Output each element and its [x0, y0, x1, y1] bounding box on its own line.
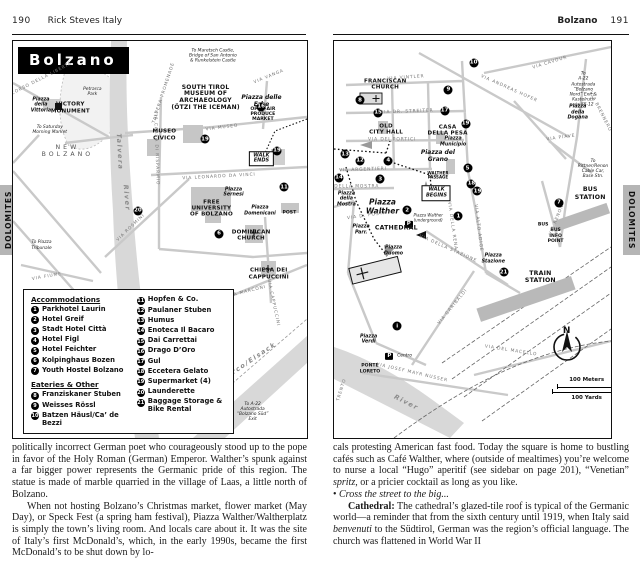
- legend-heading-eateries: Eateries & Other: [31, 380, 130, 389]
- legend-marker: 10: [31, 412, 39, 420]
- legend-label: Weisses Rössl: [42, 402, 96, 410]
- map-label: Piazza della Dogana: [567, 105, 588, 122]
- legend-marker: 14: [137, 327, 145, 335]
- legend-item: 3 Stadt Hotel Città: [31, 326, 130, 335]
- legend-item: 13 Humus: [137, 317, 228, 326]
- scale-meters-label: 100 Meters: [549, 377, 612, 383]
- map-label: Piazza del Grano: [421, 150, 455, 164]
- compass-north-label: N: [563, 326, 571, 336]
- legend-item: 5 Hotel Feichter: [31, 346, 130, 355]
- map-label: Piazza Municipio: [440, 137, 466, 148]
- body-paragraph: cals protesting American fast food. Toda…: [333, 442, 629, 489]
- legend-item: 9 Weisses Rössl: [31, 402, 130, 411]
- legend-marker: 4: [31, 337, 39, 345]
- map-label: Piazza Parr.: [353, 225, 370, 236]
- legend-label: Gul: [148, 358, 161, 366]
- map-marker: 4: [384, 156, 393, 165]
- legend-label: Baggage Storage & Bike Rental: [148, 398, 228, 414]
- legend-item: 6 Kolpinghaus Bozen: [31, 357, 130, 366]
- map-label: River: [121, 184, 131, 211]
- legend-marker: 18: [137, 368, 145, 376]
- text-run: politically incorrect German poet who co…: [12, 442, 307, 500]
- map-label: VIA DELLA MOSTRA: [333, 184, 379, 189]
- map-legend: Accommodations 1 Parkhotel Laurin 2 Hote…: [23, 289, 234, 434]
- map-marker: 16: [257, 102, 266, 111]
- legend-marker: 8: [31, 392, 39, 400]
- legend-label: Launderette: [148, 388, 195, 396]
- map-marker: 14: [334, 173, 343, 182]
- map-label: VICTORY MONUMENT: [51, 102, 90, 115]
- legend-marker: 2: [31, 316, 39, 324]
- legend-label: Hotel Feichter: [42, 346, 96, 354]
- map-label: To A-22 Autostrada “Bolzano Süd” Exit: [237, 402, 269, 422]
- legend-label: Supermarket (4): [148, 378, 211, 386]
- legend-item: 20 Launderette: [137, 388, 228, 397]
- legend-item: 16 Drago D’Oro: [137, 347, 228, 356]
- map-marker: 19: [273, 146, 282, 155]
- legend-item: 8 Franziskaner Stuben: [31, 391, 130, 400]
- map-label: FREE UNIVERSITY OF BOLZANO: [190, 199, 233, 218]
- legend-label: Franziskaner Stuben: [42, 391, 121, 399]
- legend-item: 7 Youth Hostel Bolzano: [31, 367, 130, 376]
- map-marker: 10: [469, 58, 478, 67]
- legend-marker: 20: [137, 389, 145, 397]
- legend-item: 19 Supermarket (4): [137, 378, 228, 387]
- legend-item: 17 Gul: [137, 358, 228, 367]
- legend-label: Batzen Häusl/Ca’ de Bezzi: [42, 412, 130, 428]
- map-label: DOMINICAN CHURCH: [232, 229, 271, 242]
- map-label: Piazza Walther (underground): [413, 214, 442, 223]
- map-marker: 13: [341, 150, 350, 159]
- section-tab-dolomites-right: DOLOMITES: [623, 185, 640, 255]
- legend-label: Humus: [148, 317, 175, 325]
- text-run: Cathedral:: [348, 501, 395, 512]
- legend-item: 11 Hopfen & Co.: [137, 296, 228, 305]
- text-run: cals protesting American fast food. Toda…: [333, 442, 629, 476]
- legend-item: 10 Batzen Häusl/Ca’ de Bezzi: [31, 412, 130, 428]
- map-label: CATHEDRAL: [375, 224, 418, 231]
- chapter-title: Bolzano: [557, 16, 597, 26]
- map-label: Petrarca Park: [83, 87, 101, 97]
- map-marker: 7: [554, 198, 563, 207]
- legend-label: Youth Hostel Bolzano: [42, 367, 123, 375]
- legend-marker: 12: [137, 307, 145, 315]
- map-marker: 1: [454, 212, 463, 221]
- map-label: Piazza Duomo: [384, 246, 403, 257]
- map-label: To Rittner/Renon Cable Car, Base Stn.: [578, 159, 609, 179]
- map-label: TRAIN STATION: [525, 270, 556, 284]
- map-label: SOUTH TIROL MUSEUM OF ARCHAEOLOGY (ÖTZI …: [171, 85, 239, 113]
- legend-item: 15 Dai Carrettai: [137, 337, 228, 346]
- legend-marker: 19: [137, 378, 145, 386]
- map-label: BUS: [538, 222, 549, 227]
- map-label: Talvera: [114, 133, 123, 170]
- legend-marker: 11: [137, 297, 145, 305]
- map-label: To Piazza Tribunale: [31, 240, 51, 250]
- legend-label: Dai Carrettai: [148, 337, 197, 345]
- map-marker: 5: [463, 164, 472, 173]
- legend-marker: 9: [31, 402, 39, 410]
- map-marker: 19: [473, 187, 482, 196]
- legend-label: Enoteca Il Bacaro: [148, 327, 215, 335]
- map-title: Bolzano: [18, 47, 129, 74]
- legend-item: 18 Eccetera Gelato: [137, 368, 228, 377]
- map-label: To Maretsch Castle, Bridge of San Antoni…: [189, 48, 237, 63]
- legend-label: Stadt Hotel Città: [42, 326, 107, 334]
- legend-label: Hotel Greif: [42, 316, 84, 324]
- map-marker: 6: [215, 229, 224, 238]
- map-marker: 9: [444, 85, 453, 94]
- legend-marker: 6: [31, 357, 39, 365]
- text-run: , or a pricier cocktail as long as you l…: [355, 477, 517, 488]
- legend-item: 1 Parkhotel Laurin: [31, 306, 130, 315]
- legend-column-2: 11 Hopfen & Co. 12 Paulaner Stuben 13 Hu…: [137, 295, 228, 429]
- map-label: Piazza della Vittoria: [31, 97, 51, 114]
- map-label: Piazza Domenicani: [244, 206, 276, 217]
- body-paragraph: Cathedral: The cathedral’s glazed-tile r…: [333, 501, 629, 548]
- legend-marker: 21: [137, 399, 145, 407]
- map-label: P: [385, 353, 393, 359]
- book-spread: DOLOMITES DOLOMITES 190 Rick Steves Ital…: [0, 0, 640, 568]
- page-header-right: Bolzano 191: [333, 16, 629, 35]
- map-marker: 15: [374, 108, 383, 117]
- text-run: Cross the street to the big...: [339, 489, 449, 500]
- map-label: Centro: [397, 354, 412, 359]
- scale-yards-label: 100 Yards: [549, 395, 612, 401]
- legend-marker: 5: [31, 347, 39, 355]
- legend-label: Hotel Figl: [42, 336, 79, 344]
- map-marker: 19: [461, 119, 470, 128]
- legend-item: 21 Baggage Storage & Bike Rental: [137, 398, 228, 414]
- bolzano-map-west: Bolzano To Maretsch Castle, Bridge of Sa…: [12, 40, 308, 439]
- legend-marker: 3: [31, 327, 39, 335]
- map-label: OLD CITY HALL: [369, 123, 403, 136]
- map-marker: 20: [133, 206, 142, 215]
- map-marker: 17: [440, 106, 449, 115]
- page-header-left: 190 Rick Steves Italy: [12, 16, 306, 35]
- legend-label: Parkhotel Laurin: [42, 306, 106, 314]
- legend-item: 14 Enoteca Il Bacaro: [137, 327, 228, 336]
- text-run: When not hosting Bolzano’s Christmas mar…: [12, 501, 307, 559]
- map-label: WALTHER PASSAGE: [427, 171, 448, 180]
- map-label: VIA DEI PORTICI: [368, 137, 416, 142]
- legend-label: Drago D’Oro: [148, 347, 196, 355]
- page-number: 191: [610, 16, 629, 26]
- map-marker: 12: [356, 156, 365, 165]
- legend-marker: 16: [137, 348, 145, 356]
- legend-label: Hopfen & Co.: [148, 296, 199, 304]
- bolzano-map-east: FRANCISCAN CHURCHVIA VINTLERVIA CAVOURVI…: [333, 40, 612, 439]
- scale-yards-bar: [552, 389, 612, 394]
- legend-marker: 17: [137, 358, 145, 366]
- map-marker: 3: [376, 175, 385, 184]
- map-label: Piazza Sernesi: [223, 187, 243, 198]
- legend-label: Kolpinghaus Bozen: [42, 357, 115, 365]
- map-label: Piazza Stazione: [482, 254, 505, 265]
- book-title: Rick Steves Italy: [48, 16, 123, 26]
- legend-label: Eccetera Gelato: [148, 368, 209, 376]
- map-marker: 8: [356, 96, 365, 105]
- legend-item: 2 Hotel Greif: [31, 316, 130, 325]
- legend-heading-accommodations: Accommodations: [31, 295, 130, 304]
- map-marker: 2: [403, 206, 412, 215]
- text-run: benvenuti: [333, 524, 372, 535]
- body-text-right: cals protesting American fast food. Toda…: [333, 442, 629, 547]
- map-label: Piazza della Mostra: [337, 192, 356, 209]
- map-label: WALK ENDS: [249, 151, 273, 167]
- legend-marker: 1: [31, 306, 39, 314]
- text-run: spritz: [333, 477, 355, 488]
- legend-item: 12 Paulaner Stuben: [137, 307, 228, 316]
- scale-bar: 100 Meters 100 Yards: [549, 376, 612, 402]
- compass-rose: N: [550, 325, 584, 369]
- legend-label: Paulaner Stuben: [148, 307, 212, 315]
- body-paragraph: When not hosting Bolzano’s Christmas mar…: [12, 501, 307, 560]
- map-label: WALK BEGINS: [422, 186, 451, 202]
- legend-item: 4 Hotel Figl: [31, 336, 130, 345]
- map-label: To Saturday Morning Market: [33, 125, 68, 135]
- legend-column-1: Accommodations 1 Parkhotel Laurin 2 Hote…: [31, 295, 130, 429]
- map-label: POST: [283, 210, 297, 215]
- map-marker: 11: [280, 183, 289, 192]
- legend-marker: 15: [137, 338, 145, 346]
- map-marker: 21: [499, 268, 508, 277]
- page-number: 190: [12, 16, 31, 26]
- body-text-left: politically incorrect German poet who co…: [12, 442, 307, 559]
- map-marker: 19: [200, 135, 209, 144]
- body-paragraph: • Cross the street to the big...: [333, 489, 629, 501]
- text-run: to the Südtirol, German was the region’s…: [333, 524, 629, 547]
- map-marker: i: [393, 322, 402, 331]
- legend-eateries: 8 Franziskaner Stuben 9 Weisses Rössl 10…: [31, 391, 130, 427]
- map-label: Piazza Verdi: [360, 334, 377, 345]
- legend-marker: 13: [137, 317, 145, 325]
- legend-other: 11 Hopfen & Co. 12 Paulaner Stuben 13 Hu…: [137, 296, 228, 414]
- body-paragraph: politically incorrect German poet who co…: [12, 442, 307, 501]
- map-label: BUS STATION: [575, 186, 606, 200]
- map-label: NEW BOLZANO: [42, 143, 93, 157]
- legend-accommodations: 1 Parkhotel Laurin 2 Hotel Greif 3 Stadt…: [31, 306, 130, 376]
- legend-marker: 7: [31, 367, 39, 375]
